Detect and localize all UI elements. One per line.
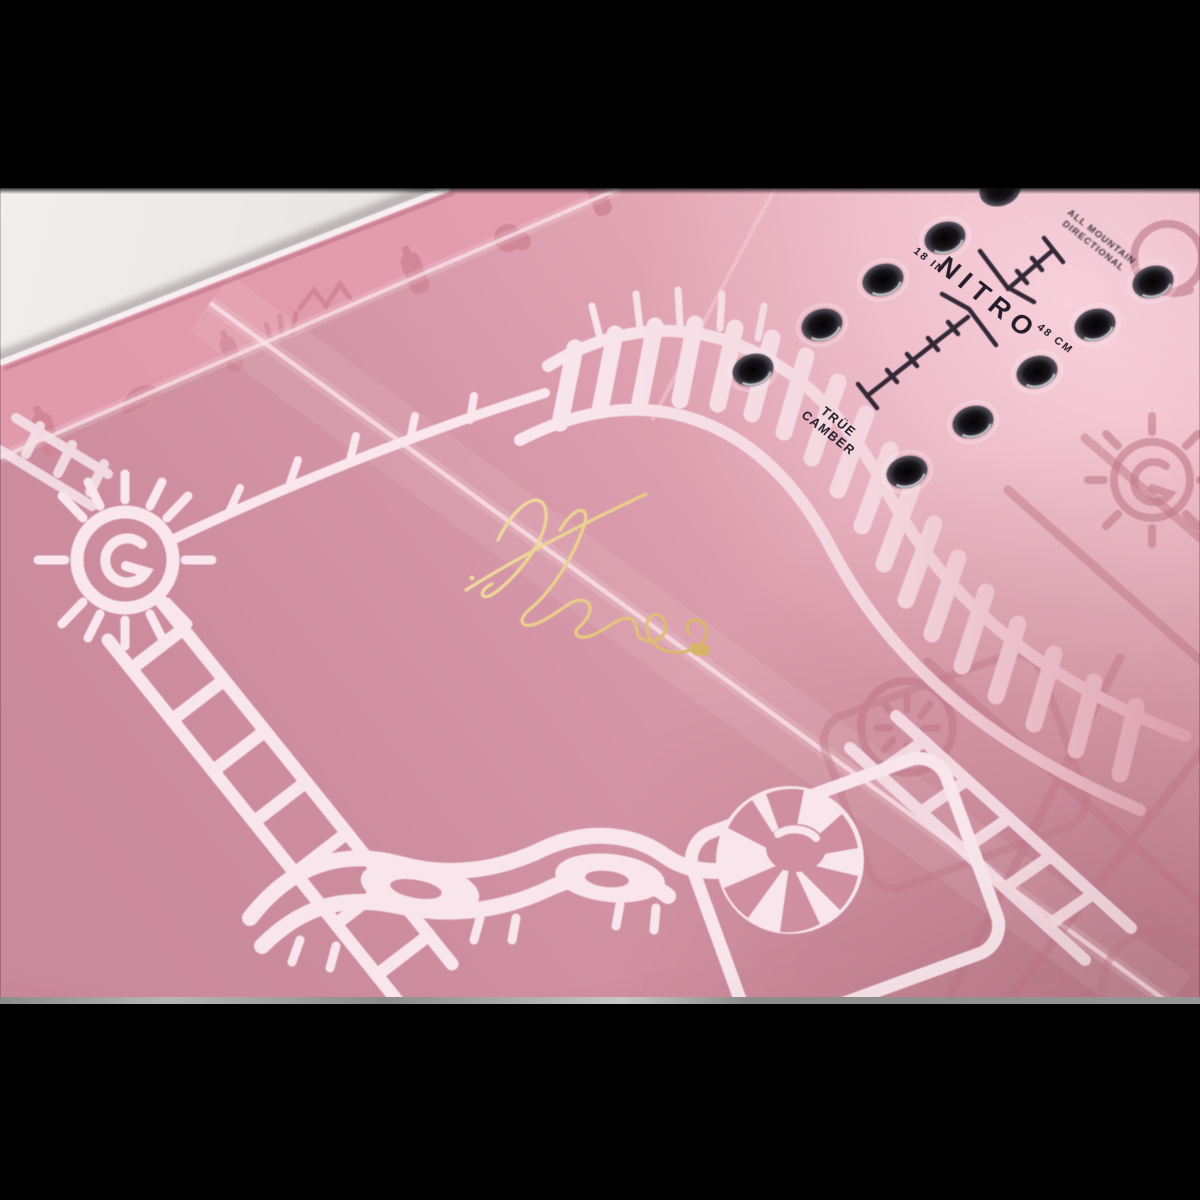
letterbox-top: [0, 0, 1200, 188]
letterbox-bottom: [0, 1004, 1200, 1200]
photo: NITRO 18 IN 48 CM TRÜE CAMBER ALL MOUNTA…: [0, 188, 1200, 1004]
screenshot: NITRO 18 IN 48 CM TRÜE CAMBER ALL MOUNTA…: [0, 0, 1200, 1200]
photo-bottom-seam: [0, 997, 1200, 1004]
photo-top-seam: [0, 188, 1200, 194]
